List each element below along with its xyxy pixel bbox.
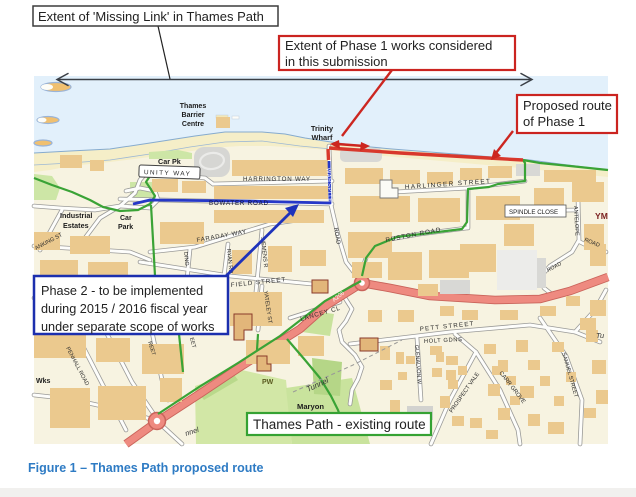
svg-text:Industrial: Industrial	[60, 211, 92, 220]
svg-text:Thames: Thames	[180, 103, 207, 110]
svg-text:SPINDLE CLOSE: SPINDLE CLOSE	[509, 209, 558, 216]
svg-text:Extent of 'Missing Link' in Th: Extent of 'Missing Link' in Thames Path	[38, 9, 264, 24]
svg-text:Estates: Estates	[63, 221, 89, 230]
svg-text:during 2015 / 2016 fiscal year: during 2015 / 2016 fiscal year	[41, 302, 208, 316]
svg-text:BOWATER ROAD: BOWATER ROAD	[209, 200, 269, 207]
svg-text:Wharf: Wharf	[312, 133, 333, 142]
svg-text:Barrier: Barrier	[182, 112, 205, 119]
svg-text:Tu: Tu	[596, 331, 604, 340]
svg-text:under separate scope of works: under separate scope of works	[41, 320, 215, 334]
svg-text:Centre: Centre	[182, 121, 204, 128]
svg-text:Maryon: Maryon	[297, 402, 324, 411]
svg-text:PW: PW	[262, 379, 274, 386]
svg-text:Proposed route: Proposed route	[523, 98, 612, 113]
svg-text:Extent of Phase 1 works consid: Extent of Phase 1 works considered	[285, 38, 492, 53]
svg-text:Car Pk: Car Pk	[158, 157, 181, 166]
svg-text:Trinity: Trinity	[311, 124, 334, 133]
svg-text:of Phase 1: of Phase 1	[523, 114, 585, 129]
svg-text:Figure 1 – Thames Path propose: Figure 1 – Thames Path proposed route	[28, 461, 264, 475]
svg-text:Thames Path - existing route: Thames Path - existing route	[253, 417, 426, 432]
svg-text:Wks: Wks	[36, 378, 51, 385]
svg-text:in this submission: in this submission	[285, 54, 388, 69]
svg-text:HARRINGTON WAY: HARRINGTON WAY	[243, 176, 311, 183]
svg-text:Park: Park	[118, 224, 133, 231]
svg-text:YM: YM	[595, 211, 608, 221]
svg-text:Phase 2 - to be implemented: Phase 2 - to be implemented	[41, 284, 203, 298]
svg-text:Car: Car	[120, 215, 132, 222]
